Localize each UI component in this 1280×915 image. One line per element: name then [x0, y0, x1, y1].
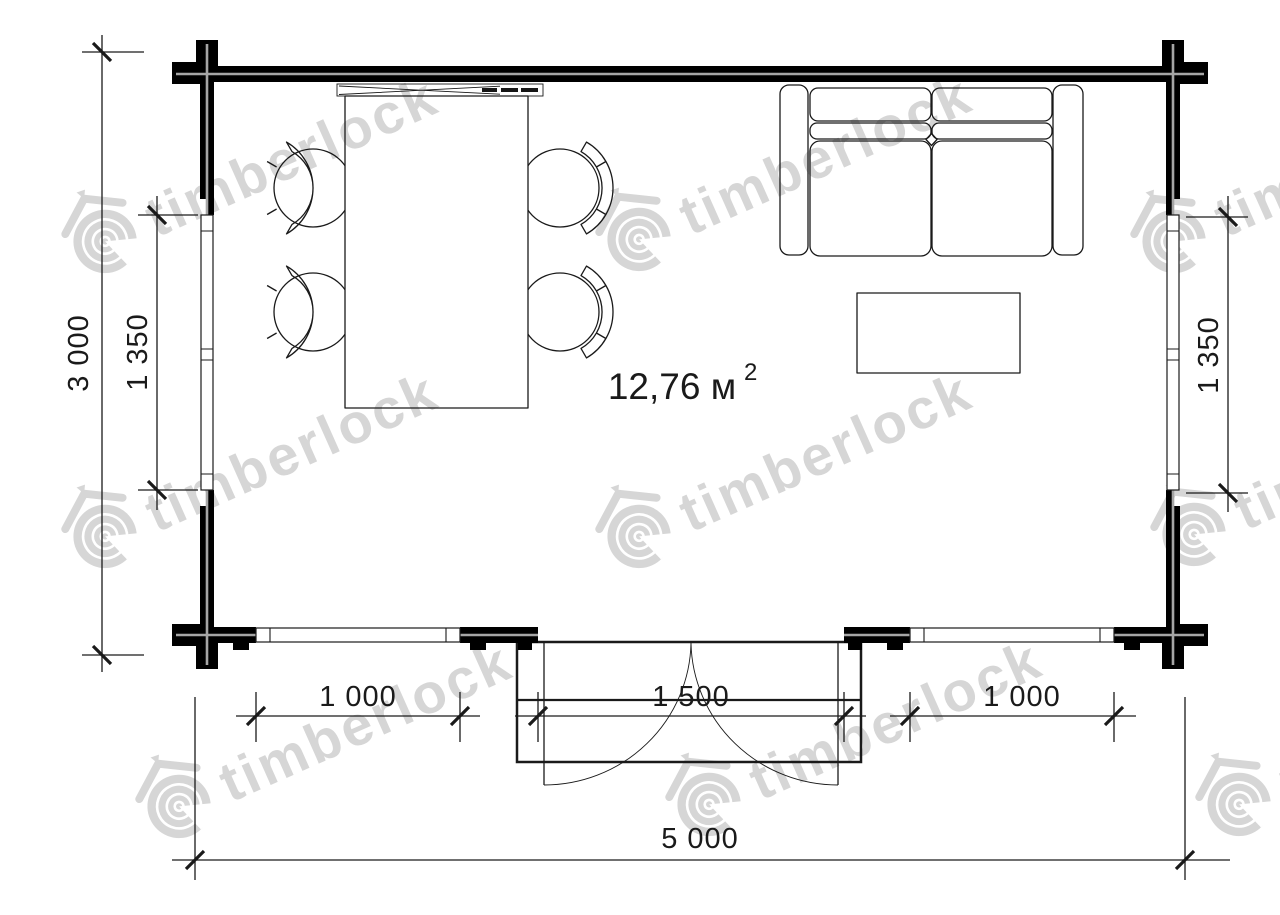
sofa-seat-cushion	[932, 141, 1052, 256]
chair	[267, 266, 352, 358]
watermark-text: timberlock	[1205, 64, 1280, 249]
watermark-text: timberlock	[1270, 627, 1280, 812]
window-left	[201, 215, 213, 490]
floor-plan-canvas: timberlock timberlock timberlock timberl…	[0, 0, 1280, 915]
watermark-text: timberlock	[1225, 357, 1280, 542]
sofa-armrest	[1053, 85, 1083, 255]
area-label: 12,76 м 2	[608, 359, 758, 407]
area-value: 12,76 м	[608, 366, 736, 407]
coffee-table	[857, 293, 1020, 373]
timberlock-logo-icon	[586, 175, 681, 282]
watermark-layer: timberlock timberlock timberlock timberl…	[52, 41, 1280, 849]
window-right	[1167, 215, 1179, 490]
window-front-left	[256, 628, 460, 642]
door-swing-arc-left	[544, 643, 691, 785]
door-jamb	[518, 643, 532, 650]
chair	[521, 266, 613, 358]
watermark: timberlock	[52, 338, 449, 579]
watermark-text: timberlock	[136, 359, 448, 544]
window-front-right	[910, 628, 1114, 642]
timberlock-logo-icon	[52, 472, 147, 579]
timberlock-logo-icon	[1186, 740, 1280, 847]
window-jamb	[233, 643, 249, 650]
watermark-text: timberlock	[740, 627, 1052, 812]
dim-left-window-label: 1 350	[122, 313, 154, 391]
area-superscript: 2	[744, 359, 757, 386]
door-jamb	[848, 643, 862, 650]
timberlock-logo-icon	[126, 742, 221, 849]
timberlock-logo-icon	[586, 472, 681, 579]
dim-front-left-window-label: 1 000	[319, 681, 397, 713]
dim-door-label: 1 500	[652, 681, 730, 713]
dim-right-window-label: 1 350	[1193, 316, 1225, 394]
dim-depth-label: 3 000	[63, 314, 95, 392]
window-jamb	[470, 643, 486, 650]
window-jamb	[1124, 643, 1140, 650]
dim-width-label: 5 000	[661, 823, 739, 855]
chair	[521, 142, 613, 234]
floorplan-svg: timberlock timberlock timberlock timberl…	[0, 0, 1280, 915]
timberlock-logo-icon	[52, 177, 147, 284]
dim-front-right-window-label: 1 000	[983, 681, 1061, 713]
window-jamb	[887, 643, 903, 650]
